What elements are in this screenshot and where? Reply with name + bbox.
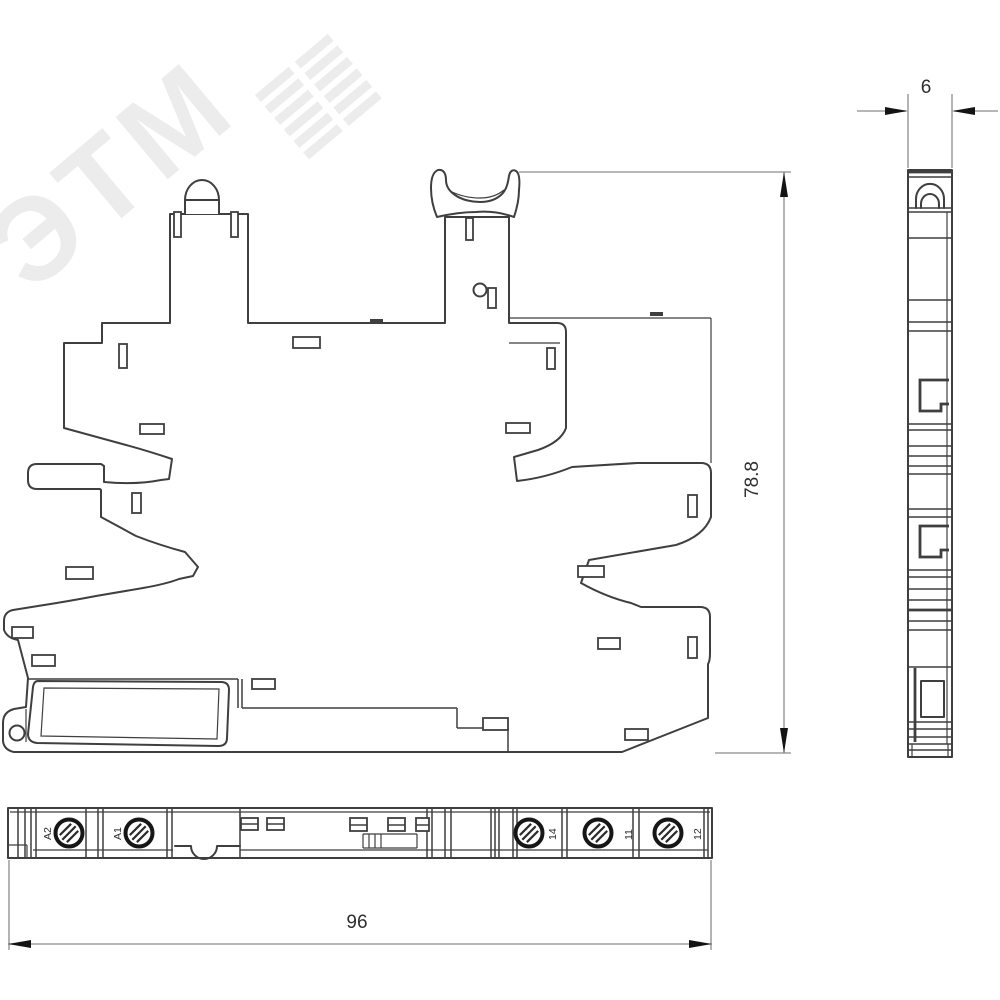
slot — [140, 424, 164, 434]
slot — [32, 655, 55, 666]
terminal-label-12: 12 — [692, 828, 704, 840]
screw-terminal-a2 — [56, 820, 83, 847]
depth-extension-lines — [908, 94, 952, 168]
width-extension-lines — [9, 860, 711, 950]
slot — [547, 348, 555, 369]
dimension-arrow-right — [885, 107, 908, 115]
retaining-clip — [431, 170, 519, 217]
technical-drawing-page: ЭТМ — [0, 0, 1000, 1000]
section-mark — [370, 319, 383, 323]
width-dimension: 96 — [8, 860, 712, 950]
slot — [132, 493, 141, 513]
slot — [252, 679, 275, 689]
slot — [119, 344, 127, 368]
screw-terminal-12 — [655, 820, 682, 847]
dimension-arrow-right — [689, 940, 712, 948]
body-outline — [3, 214, 711, 752]
terminal-label-14: 14 — [547, 828, 559, 840]
slot — [506, 423, 530, 433]
watermark-logo — [255, 34, 382, 159]
dimension-arrow-left — [952, 107, 975, 115]
slot — [466, 218, 473, 240]
depth-dimension: 6 — [857, 77, 998, 168]
terminal-label-a1: A1 — [112, 827, 124, 840]
slot — [625, 729, 648, 740]
led-dome — [185, 180, 219, 214]
dimension-arrow-up — [780, 172, 788, 197]
slot — [231, 212, 238, 237]
depth-dimension-value: 6 — [921, 77, 932, 98]
slot — [293, 337, 320, 348]
slot — [483, 718, 508, 730]
bottom-view: A2 A1 14 11 12 — [8, 808, 712, 859]
slot — [174, 212, 181, 237]
width-dimension-value: 96 — [346, 912, 367, 933]
slot — [488, 288, 496, 308]
slot — [66, 567, 93, 579]
slot — [578, 566, 604, 577]
terminal-label-11: 11 — [623, 829, 635, 840]
height-dimension-value: 78.8 — [742, 461, 763, 498]
dimension-arrow-down — [780, 728, 788, 753]
dimension-arrow-left — [8, 940, 31, 948]
terminal-label-a2: A2 — [42, 827, 54, 840]
relay-socket-drawing: ЭТМ — [0, 0, 1000, 1000]
screw-terminal-11 — [585, 820, 612, 847]
side-view — [908, 170, 952, 757]
slot — [688, 495, 697, 517]
screw-terminal-a1 — [126, 820, 153, 847]
slot — [12, 627, 33, 638]
screw-terminal-14 — [516, 820, 543, 847]
section-mark — [650, 312, 663, 316]
slot — [688, 637, 697, 658]
slot — [598, 638, 620, 649]
